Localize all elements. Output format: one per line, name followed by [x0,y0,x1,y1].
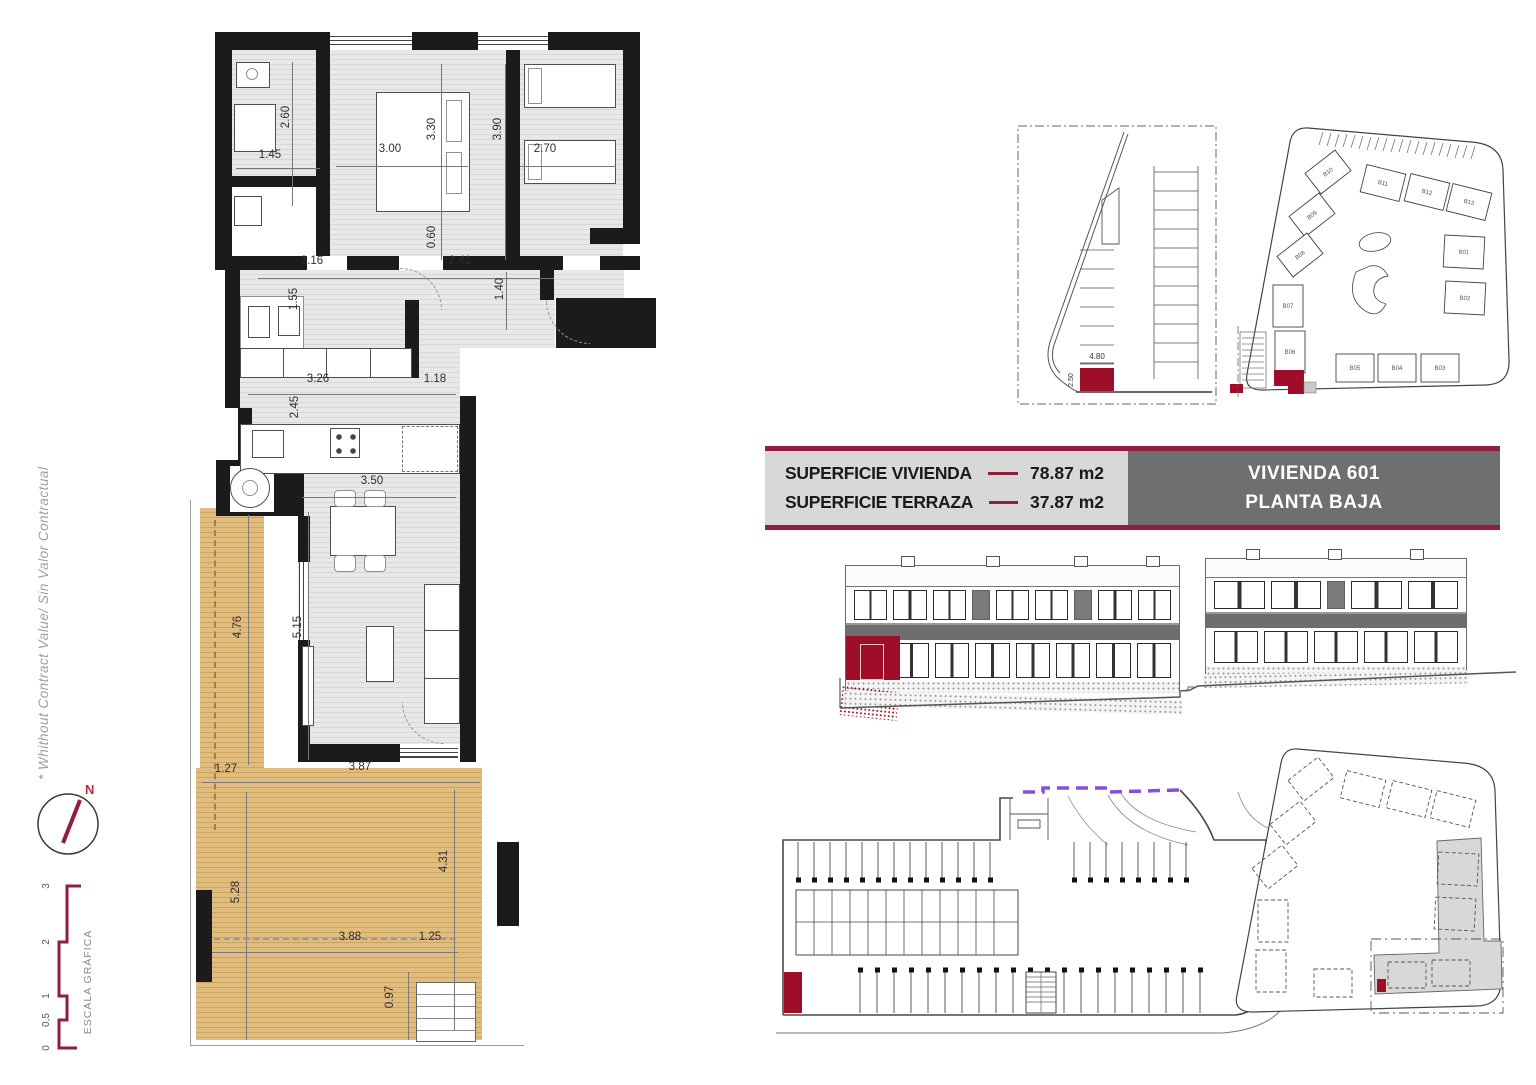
dim-line [202,782,480,783]
window-slider [400,748,458,758]
dimension-label: 4.31 [438,844,450,878]
dimension-label: 2.41 [440,255,480,267]
scale-tick: 0 [41,1045,52,1051]
counter-divider [283,348,284,378]
wall [412,32,478,50]
window [1138,590,1171,620]
dimension-label: 2.60 [280,100,292,134]
unit-label: B07 [1283,304,1294,310]
pillow [528,68,542,104]
wall [600,256,640,270]
wall [316,50,330,256]
dimension-label: 4.76 [232,610,244,644]
window [1214,581,1265,609]
dim-line [336,166,468,167]
wall [225,270,240,408]
plan-sheet: * Whithout Contract Value/ Sin Valor Con… [0,0,1536,1085]
dimension-label: 3.50 [352,475,392,487]
dimension-label: 0.60 [426,220,438,254]
wall [347,256,399,270]
highlighted-parking-space [1080,368,1114,391]
compass-north-label: N [85,782,94,797]
pillow [446,100,462,142]
dimension-label: 1.25 [410,931,450,943]
highlighted-parking-space [784,972,802,1013]
wall-pier [196,890,212,982]
dimension-label: 1.55 [288,282,300,316]
stair-core-panel [1327,581,1345,609]
chair [334,555,356,572]
dim-line [454,790,455,1030]
wall [540,268,554,300]
area-value: 37.87 m2 [1030,492,1114,513]
window [996,590,1029,620]
unit-title-panel: VIVIENDA 601 PLANTA BAJA [1128,451,1500,525]
dim-line [441,64,442,260]
dimension-label: 3.90 [492,112,504,146]
highlighted-unit [1274,370,1304,394]
scale-tick: 3 [41,883,52,889]
wall [228,176,316,187]
washing-machine-drum [242,480,258,496]
upper-floor-windows [1206,578,1466,612]
sofa [424,584,460,724]
parapet [846,566,1179,587]
unit-label: B04 [1392,366,1403,372]
window [1098,590,1131,620]
dimension-label: 1.45 [250,149,290,161]
unit-label: B03 [1435,366,1446,372]
dim-line [246,792,247,1040]
parking-detail-plan: 4.80 2.50 [1016,124,1221,409]
ground-line [828,636,1528,720]
laundry-sink [248,306,270,338]
plot-line [190,1045,524,1046]
terrace-dash-line [214,520,216,830]
area-label: SUPERFICIE VIVIENDA [785,463,972,484]
basement-site-plan [1211,729,1519,1044]
area-row: SUPERFICIE VIVIENDA 78.87 m2 [785,463,1114,484]
scale-title: ESCALA GRÁFICA [81,930,94,1034]
dim-line [236,168,320,169]
dim-line [505,64,506,260]
dim-line [258,278,554,279]
dim-line [248,515,249,765]
area-banner: SUPERFICIE VIVIENDA 78.87 m2 SUPERFICIE … [765,446,1500,530]
dimension-label: 1.18 [415,373,455,385]
area-row: SUPERFICIE TERRAZA 37.87 m2 [785,492,1114,513]
sofa-cushion-line [424,630,460,631]
kitchen-appliance [370,348,412,378]
dimension-label: 2.70 [525,143,565,155]
dimension-label: 1.40 [494,272,506,306]
north-compass: N [22,772,118,868]
washbasin [234,196,262,226]
chimney [901,556,915,567]
balcony-band [1206,612,1466,628]
dim-line [506,272,507,330]
stair-core-panel [1074,590,1092,620]
pillow [446,152,462,194]
ramp-boundary-purple [1023,788,1180,792]
dimension-label: 3.88 [330,931,370,943]
dimension-label: 5.15 [292,610,304,644]
window [1035,590,1068,620]
scale-bar-shape [59,886,81,1048]
dimension-label: 1.27 [206,763,246,775]
dimension-label: 3.00 [370,143,410,155]
leader-line [989,501,1018,504]
shower-tray [234,104,276,152]
dim-line [212,952,458,953]
chimney [1146,556,1160,567]
stair-core-panel [972,590,990,620]
window [1271,581,1322,609]
dimension-label: 2.45 [289,390,301,424]
plot-line [190,500,191,1046]
window [854,590,887,620]
wall [460,396,476,762]
compass-circle [38,794,98,854]
dimension-label: 3.26 [298,373,338,385]
wall-pier [497,842,519,926]
wall [623,32,640,232]
dimension-label: 5.28 [230,875,242,909]
area-label: SUPERFICIE TERRAZA [785,492,973,513]
wall [215,32,330,50]
dim-line [292,62,293,206]
unit-label: B06 [1285,350,1296,356]
chimney [986,556,1000,567]
window [478,36,548,45]
site-plan-overview: B10 B11 B12 B13 B09 B08 B07 B06 B05 B04 … [1228,112,1520,412]
dimension-label: 3.87 [340,761,380,773]
parking-width-dim: 4.80 [1089,352,1105,361]
unit-label: B05 [1350,366,1361,372]
dining-table [330,506,396,556]
dimension-label: 0.97 [384,980,396,1014]
scale-tick: 2 [41,939,52,945]
chimney [1074,556,1088,567]
dim-line [408,972,409,1040]
scale-tick: 1 [41,993,52,999]
window [1351,581,1402,609]
area-table: SUPERFICIE VIVIENDA 78.87 m2 SUPERFICIE … [765,451,1128,525]
terrace-stairs [416,982,476,1042]
wall [215,32,232,270]
dim-line [302,497,456,498]
dim-line [248,394,456,395]
counter-overhang [402,426,458,472]
highlighted-unit [1377,979,1386,992]
wall [298,744,400,762]
unit-name: VIVIENDA 601 [1248,459,1380,488]
wall [506,50,520,256]
unit-label: B01 [1458,250,1470,257]
upper-floor-windows [846,587,1179,623]
graphic-scale: 0 0,5 1 2 3 ESCALA GRÁFICA [25,872,115,1072]
wall [590,228,640,244]
chair [364,490,386,507]
chair [364,555,386,572]
sofa-cushion-line [424,678,460,679]
toilet-bowl [246,68,258,80]
chair [334,490,356,507]
scale-tick: 0,5 [41,1013,52,1027]
chimney [1246,549,1260,560]
disclaimer-note: * Whithout Contract Value/ Sin Valor Con… [36,462,51,780]
dimension-label: 3.16 [292,255,332,267]
chimney [1328,549,1342,560]
window [933,590,966,620]
dim-line [308,512,309,760]
parking-depth-dim: 2.50 [1068,373,1075,387]
parapet [1206,559,1466,578]
compass-needle [63,800,80,843]
coffee-table [366,626,394,682]
area-value: 78.87 m2 [1030,463,1114,484]
kitchen-sink [252,430,284,458]
window [330,36,412,45]
unit-label: B02 [1459,296,1471,303]
dim-line [520,166,616,167]
dimension-label: 3.30 [426,112,438,146]
leader-line [988,472,1018,475]
window [1408,581,1459,609]
unit-floor: PLANTA BAJA [1245,488,1382,517]
chimney [1410,549,1424,560]
window [893,590,926,620]
stove [330,428,360,458]
